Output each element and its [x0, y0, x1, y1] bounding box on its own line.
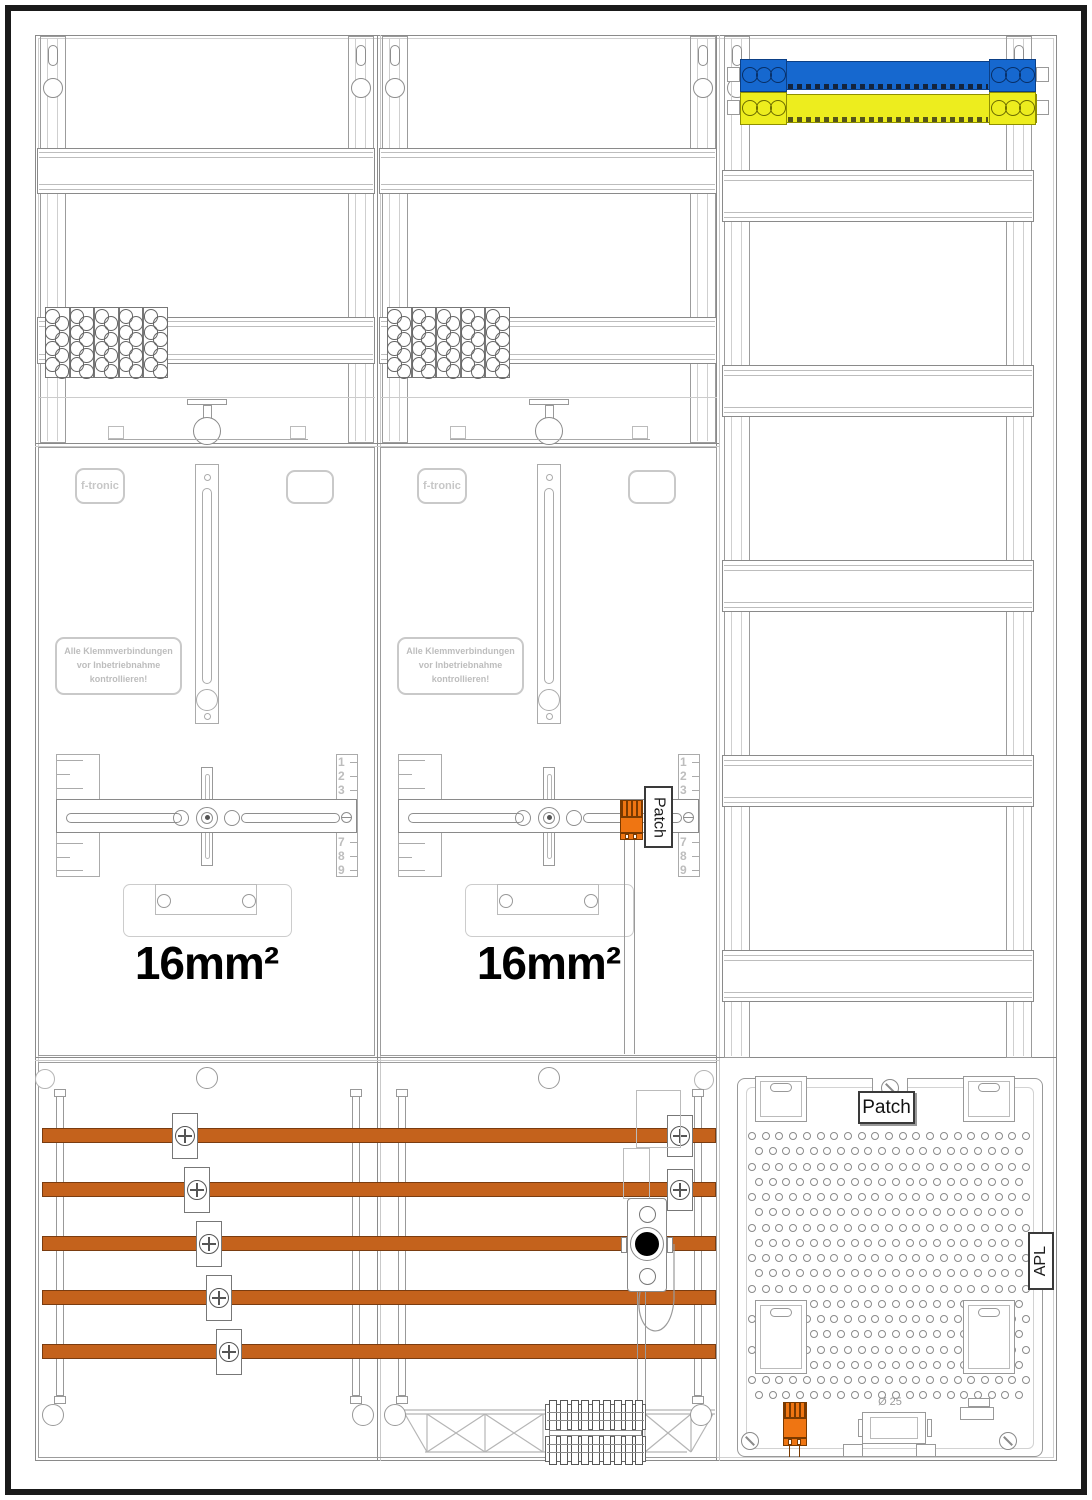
- drawing-frame: [5, 5, 1087, 1495]
- meter-cabinet-drawing: f-tronic f-tronic Alle Klemmverbindungen…: [0, 0, 1092, 1500]
